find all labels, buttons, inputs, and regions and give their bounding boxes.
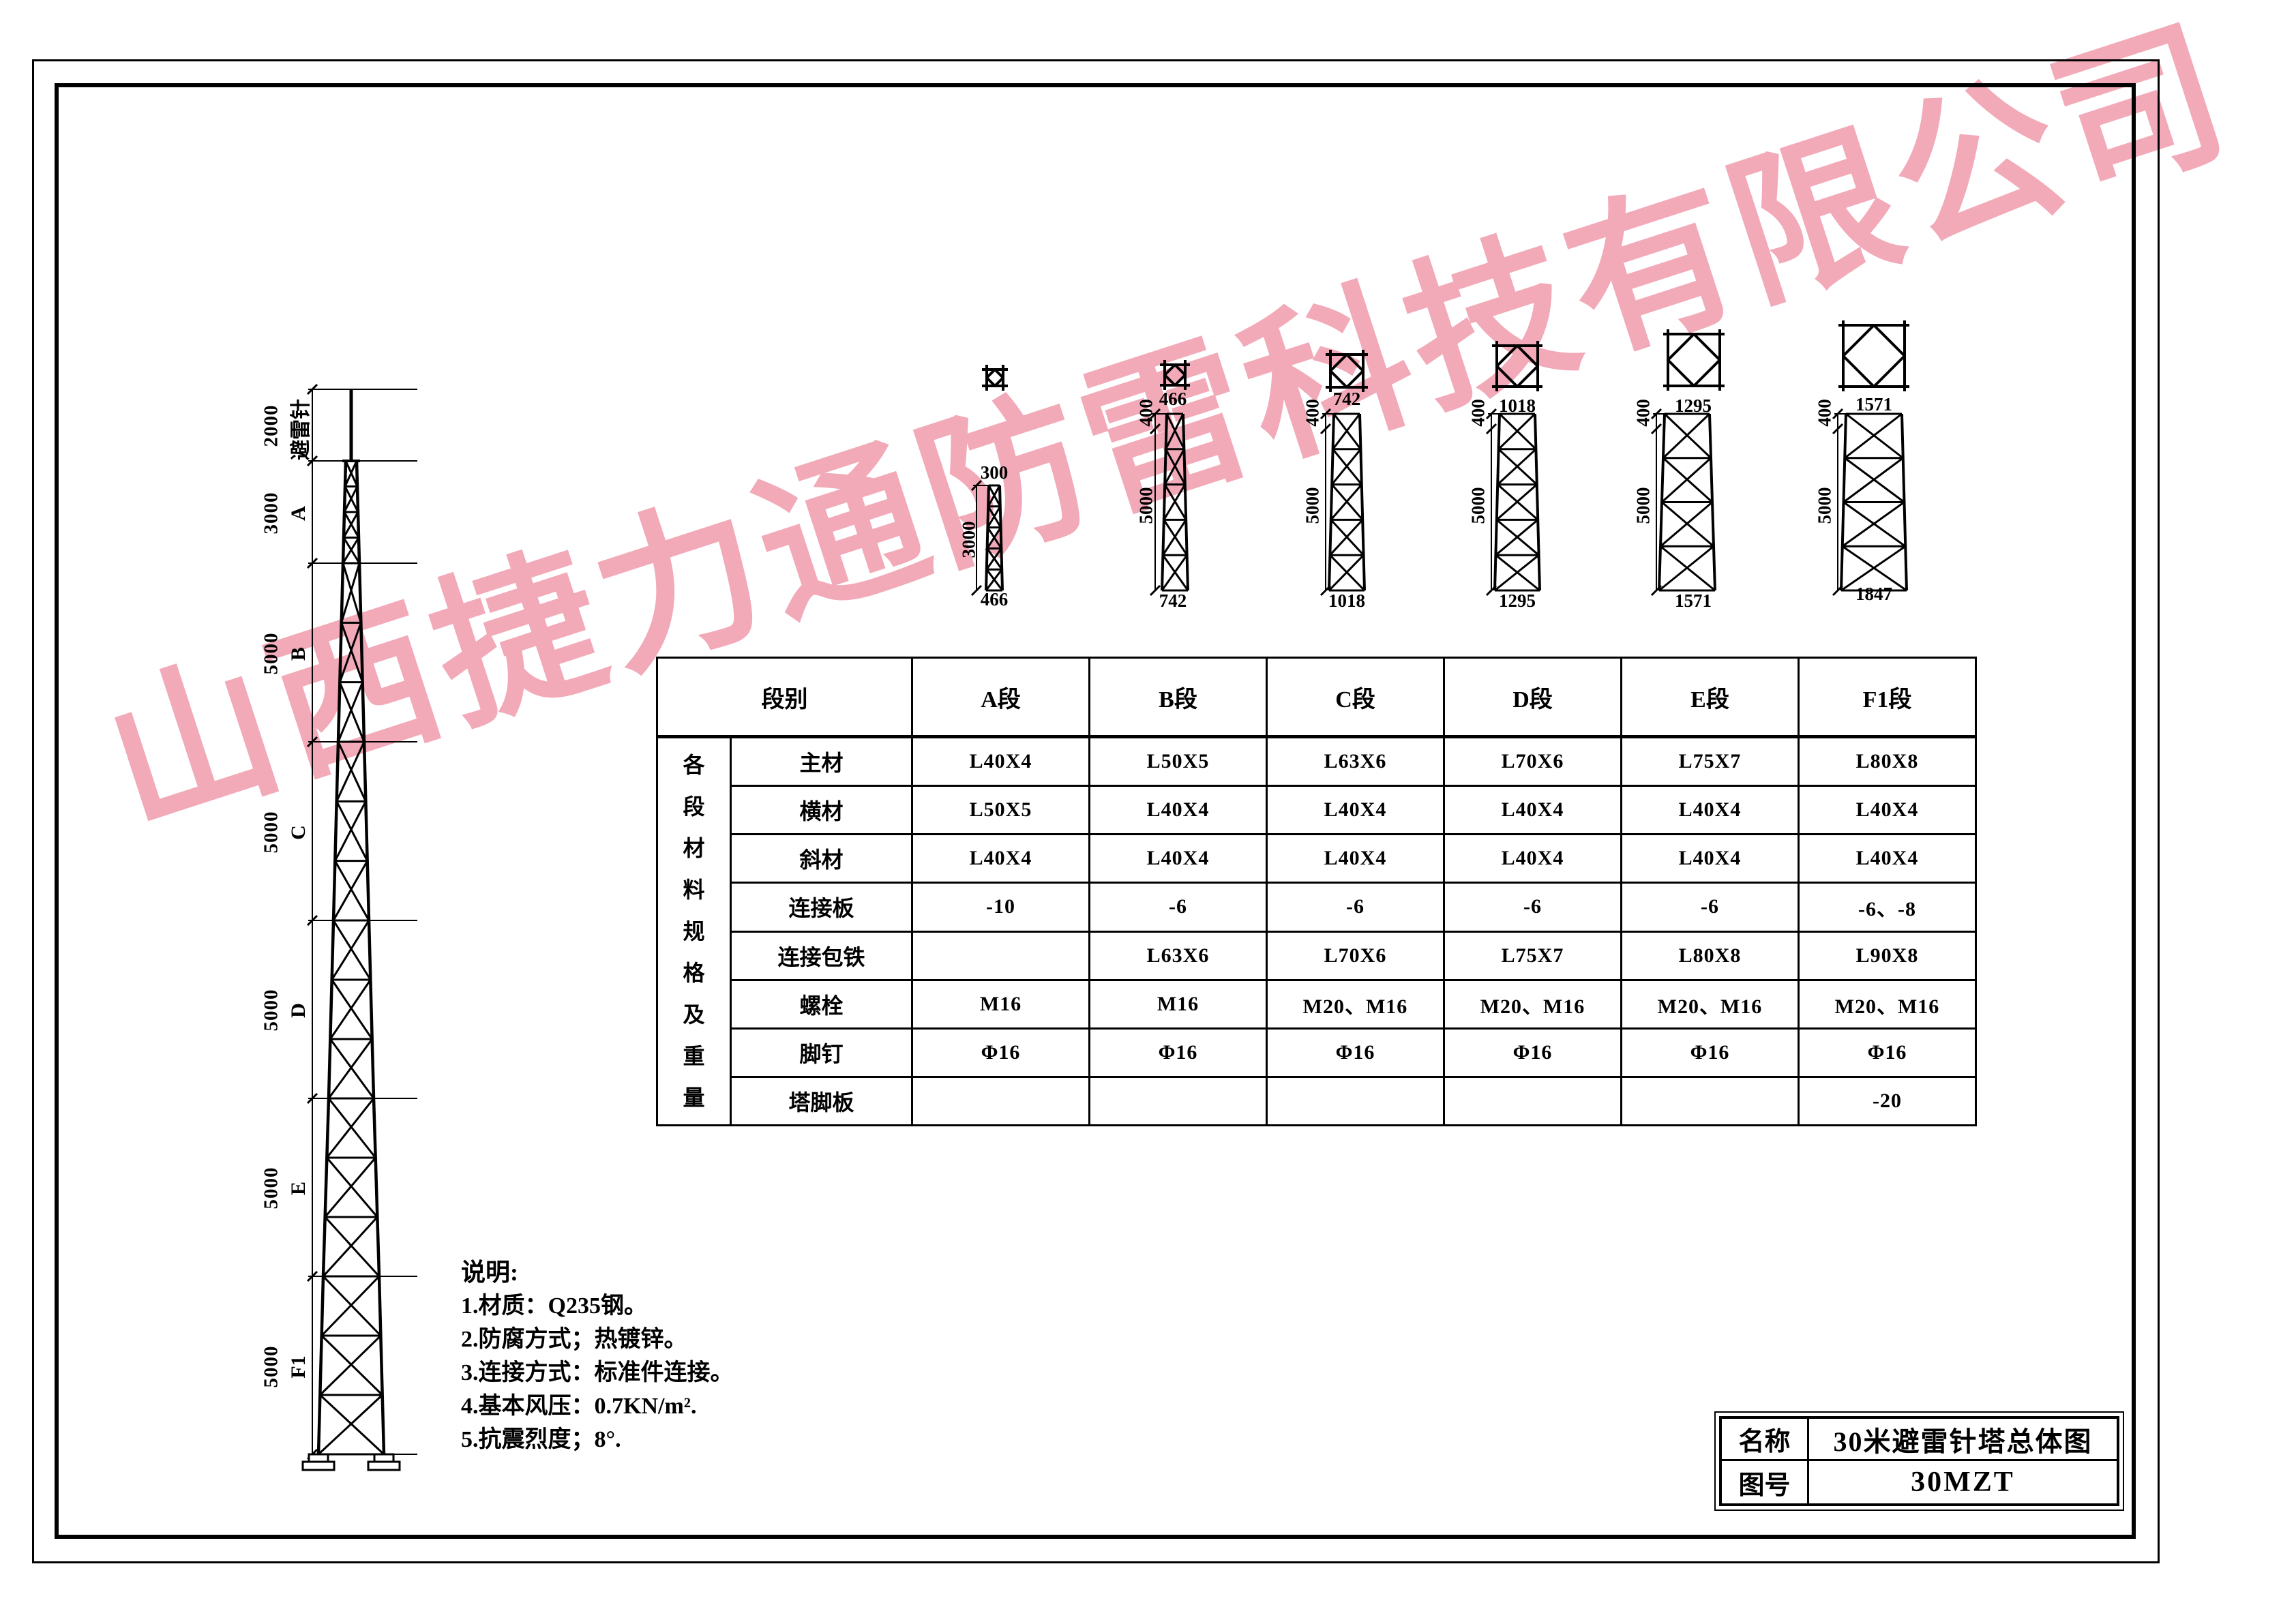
- row-label: 塔脚板: [732, 1078, 911, 1124]
- title-number-label: 图号: [1722, 1461, 1809, 1503]
- spec-corner-label: 段别: [658, 659, 911, 735]
- spec-col-d: D段: [1443, 659, 1620, 735]
- spec-group-label-cell: 各段材料规格及重量: [658, 738, 732, 1124]
- cell: [911, 933, 1088, 979]
- cell: L40X4: [1443, 835, 1620, 882]
- cell: Φ16: [1088, 1030, 1266, 1076]
- cell: L40X4: [911, 835, 1088, 882]
- spec-table-header-row: 段别 A段 B段 C段 D段 E段 F1段: [658, 659, 1975, 738]
- spec-col-c: C段: [1266, 659, 1443, 735]
- cell: -20: [1798, 1078, 1975, 1124]
- section-label-f1: F1: [287, 1312, 310, 1422]
- seg-b-bottom-width: 742: [1125, 590, 1221, 612]
- cell: -6: [1620, 884, 1798, 930]
- table-row: 螺栓 M16 M16 M20、M16 M20、M16 M20、M16 M20、M…: [732, 979, 1975, 1027]
- cell: Φ16: [1266, 1030, 1443, 1076]
- dim-section-b: 5000: [260, 599, 283, 708]
- spec-col-a: A段: [911, 659, 1088, 735]
- seg-b-height: 5000: [1136, 458, 1157, 554]
- cell: -10: [911, 884, 1088, 930]
- cell: L50X5: [911, 787, 1088, 833]
- row-label: 斜材: [732, 835, 911, 882]
- cell: L40X4: [1798, 835, 1975, 882]
- seg-e-top-offset: 400: [1633, 365, 1654, 461]
- seg-f1-top-width: 1571: [1826, 394, 1922, 415]
- cell: L70X6: [1266, 933, 1443, 979]
- dim-section-f1: 5000: [260, 1312, 283, 1422]
- seg-a-top-width: 300: [946, 462, 1042, 483]
- table-row: 塔脚板 -20: [732, 1076, 1975, 1124]
- seg-c-bottom-width: 1018: [1299, 590, 1395, 612]
- dim-section-c: 5000: [260, 778, 283, 887]
- spec-col-f1: F1段: [1798, 659, 1975, 735]
- section-label-a: A: [287, 459, 310, 568]
- row-label: 连接板: [732, 884, 911, 930]
- cell: L70X6: [1443, 738, 1620, 785]
- table-row: 脚钉 Φ16 Φ16 Φ16 Φ16 Φ16 Φ16: [732, 1027, 1975, 1076]
- seg-e-top-width: 1295: [1645, 395, 1741, 417]
- cell: L80X8: [1798, 738, 1975, 785]
- cell: L75X7: [1443, 933, 1620, 979]
- drawing-title: 30米避雷针塔总体图: [1809, 1419, 2117, 1461]
- cell: M20、M16: [1266, 981, 1443, 1027]
- note-line: 4.基本风压：0.7KN/m².: [461, 1390, 734, 1423]
- spec-col-b: B段: [1088, 659, 1266, 735]
- seg-d-bottom-width: 1295: [1470, 590, 1565, 612]
- seg-c-height: 5000: [1302, 458, 1324, 554]
- cell: Φ16: [1620, 1030, 1798, 1076]
- row-label: 螺栓: [732, 981, 911, 1027]
- cell: L40X4: [1620, 787, 1798, 833]
- cell: [1088, 1078, 1266, 1124]
- table-row: 斜材 L40X4 L40X4 L40X4 L40X4 L40X4 L40X4: [732, 833, 1975, 882]
- note-line: 3.连接方式：标准件连接。: [461, 1356, 734, 1390]
- row-label: 脚钉: [732, 1030, 911, 1076]
- cell: -6: [1266, 884, 1443, 930]
- cell: M16: [911, 981, 1088, 1027]
- notes-title: 说明:: [461, 1256, 734, 1289]
- section-label-b: B: [287, 599, 310, 708]
- row-label: 横材: [732, 787, 911, 833]
- cell: [1266, 1078, 1443, 1124]
- cell: L50X5: [1088, 738, 1266, 785]
- cell: L40X4: [1798, 787, 1975, 833]
- seg-f1-height: 5000: [1815, 458, 1836, 554]
- seg-b-top-offset: 400: [1136, 365, 1157, 461]
- table-row: 横材 L50X5 L40X4 L40X4 L40X4 L40X4 L40X4: [732, 785, 1975, 833]
- seg-e-bottom-width: 1571: [1645, 590, 1741, 612]
- cell: L40X4: [1620, 835, 1798, 882]
- cell: L40X4: [911, 738, 1088, 785]
- dim-section-e: 5000: [260, 1134, 283, 1243]
- seg-e-height: 5000: [1633, 458, 1654, 554]
- table-row: 连接板 -10 -6 -6 -6 -6 -6、-8: [732, 882, 1975, 930]
- row-label: 主材: [732, 738, 911, 785]
- row-label: 连接包铁: [732, 933, 911, 979]
- cell: M16: [1088, 981, 1266, 1027]
- cell: M20、M16: [1443, 981, 1620, 1027]
- cell: -6、-8: [1798, 884, 1975, 930]
- section-label-c: C: [287, 778, 310, 887]
- dim-section-d: 5000: [260, 956, 283, 1065]
- seg-a-bottom-width: 466: [946, 589, 1042, 610]
- cell: [911, 1078, 1088, 1124]
- spec-col-e: E段: [1620, 659, 1798, 735]
- seg-c-top-offset: 400: [1302, 365, 1324, 461]
- cell: L40X4: [1266, 835, 1443, 882]
- notes-block: 说明: 1.材质：Q235钢。 2.防腐方式；热镀锌。 3.连接方式：标准件连接…: [461, 1256, 734, 1456]
- section-label-e: E: [287, 1134, 310, 1243]
- cell: L63X6: [1088, 933, 1266, 979]
- cell: Φ16: [911, 1030, 1088, 1076]
- section-label-d: D: [287, 956, 310, 1065]
- cell: L63X6: [1266, 738, 1443, 785]
- note-line: 5.抗震烈度；8°.: [461, 1423, 734, 1456]
- dim-section-a: 3000: [260, 459, 283, 568]
- cell: -6: [1443, 884, 1620, 930]
- table-row: 连接包铁 L63X6 L70X6 L75X7 L80X8 L90X8: [732, 931, 1975, 979]
- seg-f1-bottom-width: 1847: [1826, 584, 1922, 605]
- spec-group-label: 各段材料规格及重量: [682, 745, 706, 1119]
- cell: [1443, 1078, 1620, 1124]
- cell: L80X8: [1620, 933, 1798, 979]
- cell: L90X8: [1798, 933, 1975, 979]
- cell: L40X4: [1088, 787, 1266, 833]
- cell: M20、M16: [1620, 981, 1798, 1027]
- note-line: 2.防腐方式；热镀锌。: [461, 1323, 734, 1356]
- table-row: 主材 L40X4 L50X5 L63X6 L70X6 L75X7 L80X8: [732, 738, 1975, 785]
- material-spec-table: 段别 A段 B段 C段 D段 E段 F1段 各段材料规格及重量 主材 L40X4…: [656, 657, 1977, 1126]
- cell: [1620, 1078, 1798, 1124]
- note-line: 1.材质：Q235钢。: [461, 1289, 734, 1323]
- title-block: 名称 30米避雷针塔总体图 图号 30MZT: [1714, 1411, 2124, 1511]
- cell: M20、M16: [1798, 981, 1975, 1027]
- cell: L40X4: [1443, 787, 1620, 833]
- title-name-label: 名称: [1722, 1419, 1809, 1461]
- drawing-sheet: { "watermark": "山西捷力通防雷科技有限公司", "tower_e…: [0, 0, 2296, 1622]
- seg-d-top-offset: 400: [1468, 365, 1489, 461]
- cell: L40X4: [1088, 835, 1266, 882]
- seg-a-height: 3000: [959, 492, 980, 588]
- seg-d-height: 5000: [1468, 458, 1489, 554]
- drawing-number: 30MZT: [1809, 1461, 2117, 1503]
- cell: -6: [1088, 884, 1266, 930]
- seg-f1-top-offset: 400: [1815, 365, 1836, 461]
- cell: L75X7: [1620, 738, 1798, 785]
- cell: L40X4: [1266, 787, 1443, 833]
- cell: Φ16: [1443, 1030, 1620, 1076]
- cell: Φ16: [1798, 1030, 1975, 1076]
